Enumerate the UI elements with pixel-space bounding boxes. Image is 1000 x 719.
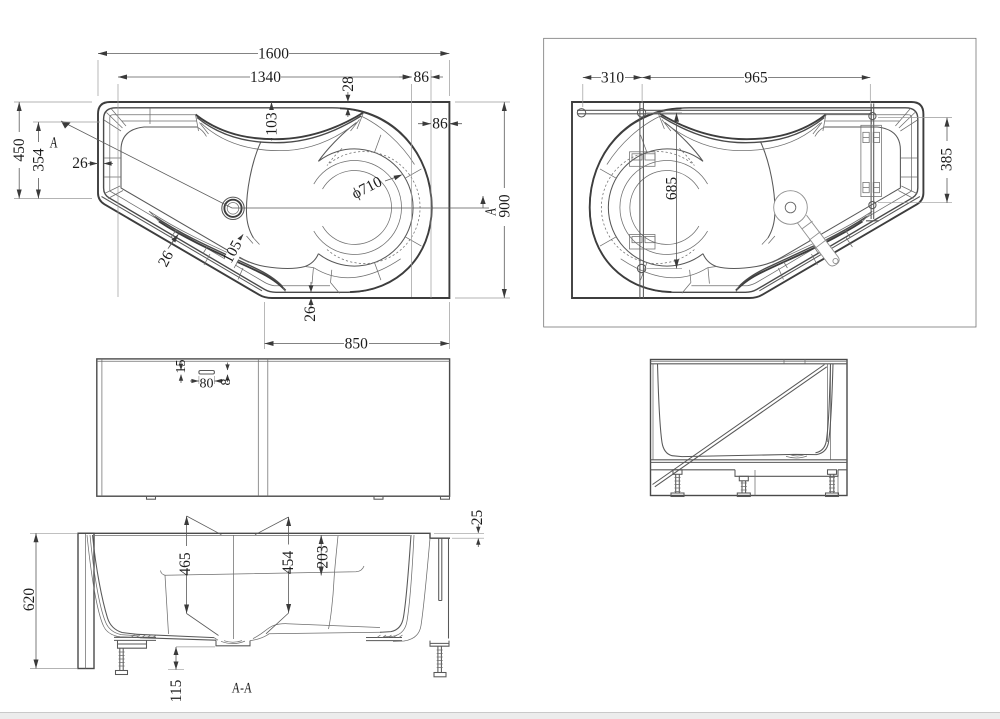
svg-text:A-A: A-A bbox=[231, 679, 253, 696]
svg-text:900: 900 bbox=[496, 194, 513, 218]
svg-text:354: 354 bbox=[30, 148, 47, 172]
svg-text:465: 465 bbox=[177, 552, 194, 576]
svg-text:454: 454 bbox=[280, 551, 297, 575]
svg-text:850: 850 bbox=[345, 335, 369, 352]
svg-text:620: 620 bbox=[21, 588, 38, 612]
svg-text:103: 103 bbox=[264, 112, 281, 136]
svg-text:86: 86 bbox=[414, 69, 430, 86]
svg-text:115: 115 bbox=[168, 679, 185, 702]
svg-text:1600: 1600 bbox=[258, 45, 289, 62]
svg-text:310: 310 bbox=[601, 69, 625, 86]
svg-text:685: 685 bbox=[664, 177, 681, 201]
svg-text:28: 28 bbox=[340, 76, 357, 92]
svg-text:385: 385 bbox=[939, 148, 956, 172]
svg-text:A: A bbox=[49, 134, 59, 151]
svg-text:1340: 1340 bbox=[250, 69, 281, 86]
svg-text:965: 965 bbox=[744, 69, 768, 86]
svg-text:203: 203 bbox=[315, 545, 332, 569]
svg-text:86: 86 bbox=[432, 116, 448, 133]
svg-text:15: 15 bbox=[174, 360, 189, 374]
svg-text:26: 26 bbox=[72, 155, 88, 172]
svg-text:26: 26 bbox=[302, 306, 319, 322]
svg-text:8: 8 bbox=[219, 379, 234, 386]
svg-text:80: 80 bbox=[200, 377, 214, 392]
svg-text:450: 450 bbox=[11, 138, 28, 162]
svg-text:25: 25 bbox=[469, 510, 486, 526]
